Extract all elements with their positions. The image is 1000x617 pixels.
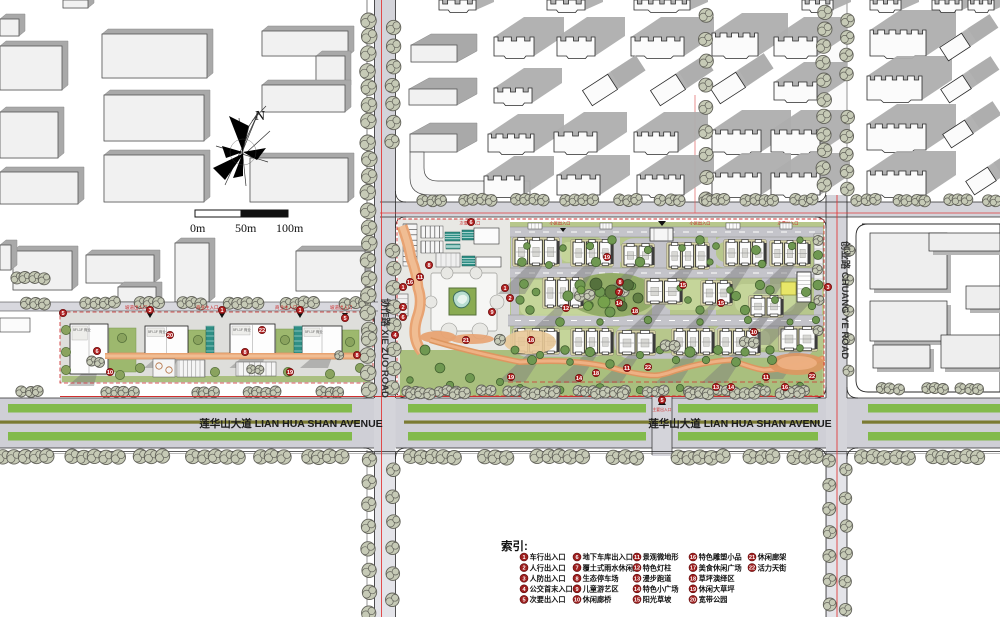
svg-text:公交首末入口: 公交首末入口 (530, 585, 573, 594)
svg-text:3: 3 (522, 576, 525, 582)
svg-text:休闲廊桥: 休闲廊桥 (582, 595, 613, 604)
svg-text:20: 20 (690, 598, 696, 604)
svg-text:儿童游艺区: 儿童游艺区 (582, 585, 619, 594)
svg-text:商业主入口: 商业主入口 (275, 304, 298, 311)
svg-text:5: 5 (660, 398, 663, 404)
svg-text:6: 6 (469, 220, 472, 226)
svg-text:6: 6 (401, 315, 404, 321)
svg-text:13: 13 (713, 385, 719, 391)
svg-text:10: 10 (574, 598, 580, 604)
svg-text:1: 1 (522, 555, 525, 561)
svg-text:莲华山大道 LIAN HUA SHAN AVENUE: 莲华山大道 LIAN HUA SHAN AVENUE (199, 417, 382, 430)
svg-text:地下车库出入口: 地下车库出入口 (583, 553, 633, 562)
svg-text:协作路 XIE ZUO ROAD: 协作路 XIE ZUO ROAD (379, 298, 391, 398)
svg-text:22: 22 (645, 365, 651, 371)
svg-text:景观微地形: 景观微地形 (643, 553, 680, 562)
svg-text:16: 16 (407, 280, 413, 286)
svg-text:20: 20 (167, 333, 173, 339)
svg-text:14: 14 (576, 376, 583, 382)
svg-text:17: 17 (690, 566, 696, 572)
svg-text:22: 22 (259, 328, 265, 334)
svg-text:5: 5 (61, 311, 64, 317)
svg-text:19: 19 (508, 375, 514, 381)
svg-text:草坪演绎区: 草坪演绎区 (699, 574, 735, 583)
svg-text:50m: 50m (235, 221, 257, 235)
svg-text:15: 15 (718, 301, 724, 307)
svg-text:7: 7 (617, 290, 620, 296)
svg-text:22: 22 (809, 374, 815, 380)
svg-text:15: 15 (634, 598, 640, 604)
svg-text:5F/-1F 商业: 5F/-1F 商业 (73, 327, 91, 332)
svg-text:19: 19 (604, 255, 610, 261)
svg-text:100m: 100m (276, 221, 304, 235)
svg-text:5F/-1F 商业: 5F/-1F 商业 (148, 329, 166, 334)
svg-text:8: 8 (427, 263, 430, 269)
svg-text:10: 10 (107, 370, 113, 376)
svg-text:6: 6 (575, 555, 578, 561)
svg-text:8: 8 (243, 350, 246, 356)
svg-text:特色灯柱: 特色灯柱 (643, 563, 673, 572)
svg-text:小区出入口: 小区出入口 (690, 220, 711, 227)
svg-text:21: 21 (463, 338, 469, 344)
svg-text:18: 18 (690, 576, 696, 582)
svg-text:15: 15 (680, 283, 686, 289)
svg-text:11: 11 (417, 275, 423, 281)
svg-text:主要出入口: 主要出入口 (653, 407, 672, 412)
svg-text:生态停车场: 生态停车场 (583, 574, 619, 583)
svg-text:特色小广场: 特色小广场 (643, 585, 679, 594)
svg-text:9: 9 (490, 310, 493, 316)
svg-text:14: 14 (616, 301, 623, 307)
svg-text:小区出入口: 小区出入口 (550, 220, 571, 227)
svg-text:13: 13 (634, 576, 640, 582)
svg-text:宽带公园: 宽带公园 (698, 595, 728, 604)
svg-text:10: 10 (751, 330, 757, 336)
svg-text:漫步跑道: 漫步跑道 (643, 574, 673, 583)
svg-text:14: 14 (728, 385, 735, 391)
svg-text:16: 16 (782, 385, 788, 391)
svg-text:车行出入口: 车行出入口 (530, 553, 566, 562)
svg-text:人防出入口: 人防出入口 (530, 574, 566, 583)
svg-text:休闲大草坪: 休闲大草坪 (698, 585, 736, 594)
svg-text:阳光草坡: 阳光草坡 (643, 595, 673, 604)
svg-text:3: 3 (148, 308, 151, 314)
svg-text:美食休闲广场: 美食休闲广场 (698, 563, 742, 572)
svg-text:14: 14 (634, 587, 641, 593)
svg-text:8: 8 (575, 576, 578, 582)
svg-text:19: 19 (690, 587, 696, 593)
svg-text:2: 2 (508, 296, 511, 302)
svg-text:2: 2 (522, 566, 525, 572)
svg-text:1: 1 (401, 285, 404, 291)
svg-text:18: 18 (632, 309, 638, 315)
svg-text:22: 22 (749, 566, 755, 572)
svg-text:1: 1 (220, 308, 223, 314)
svg-text:11: 11 (634, 555, 640, 561)
svg-text:8: 8 (355, 353, 358, 359)
svg-text:0m: 0m (190, 221, 206, 235)
svg-text:1: 1 (503, 286, 506, 292)
svg-text:商业主入口: 商业主入口 (196, 304, 219, 311)
svg-text:人行出入口: 人行出入口 (530, 563, 566, 572)
svg-text:21: 21 (749, 555, 755, 561)
svg-text:6: 6 (95, 349, 98, 355)
svg-text:5F/-1F 商业: 5F/-1F 商业 (305, 329, 323, 334)
svg-text:18: 18 (593, 371, 599, 377)
svg-text:创业路 CHUANG YE ROAD: 创业路 CHUANG YE ROAD (839, 240, 851, 360)
svg-text:11: 11 (624, 366, 630, 372)
svg-text:18: 18 (528, 338, 534, 344)
svg-text:3: 3 (826, 285, 829, 291)
svg-text:莲华山大道 LIAN HUA SHAN AVENUE: 莲华山大道 LIAN HUA SHAN AVENUE (648, 417, 831, 430)
svg-text:休闲廊架: 休闲廊架 (757, 553, 788, 562)
svg-text:8: 8 (618, 280, 621, 286)
svg-text:7: 7 (575, 566, 578, 572)
svg-text:16: 16 (690, 555, 696, 561)
svg-text:索引:: 索引: (501, 539, 528, 553)
svg-text:5: 5 (522, 598, 525, 604)
svg-text:坡道出入口: 坡道出入口 (125, 304, 148, 311)
svg-text:5: 5 (343, 316, 346, 322)
svg-text:12: 12 (563, 306, 569, 312)
svg-text:1: 1 (298, 308, 301, 314)
svg-text:特色雕塑小品: 特色雕塑小品 (699, 553, 742, 562)
svg-text:5F/-1F 商业: 5F/-1F 商业 (233, 327, 251, 332)
svg-text:覆土式雨水休闲廊: 覆土式雨水休闲廊 (583, 563, 641, 572)
svg-text:19: 19 (287, 370, 293, 376)
svg-text:12: 12 (634, 566, 640, 572)
svg-text:9: 9 (575, 587, 578, 593)
svg-text:坡道出入口: 坡道出入口 (330, 304, 353, 311)
svg-text:活力天街: 活力天街 (758, 563, 788, 572)
svg-text:11: 11 (763, 375, 769, 381)
svg-text:次要出入口: 次要出入口 (530, 595, 566, 604)
svg-text:2: 2 (401, 305, 404, 311)
